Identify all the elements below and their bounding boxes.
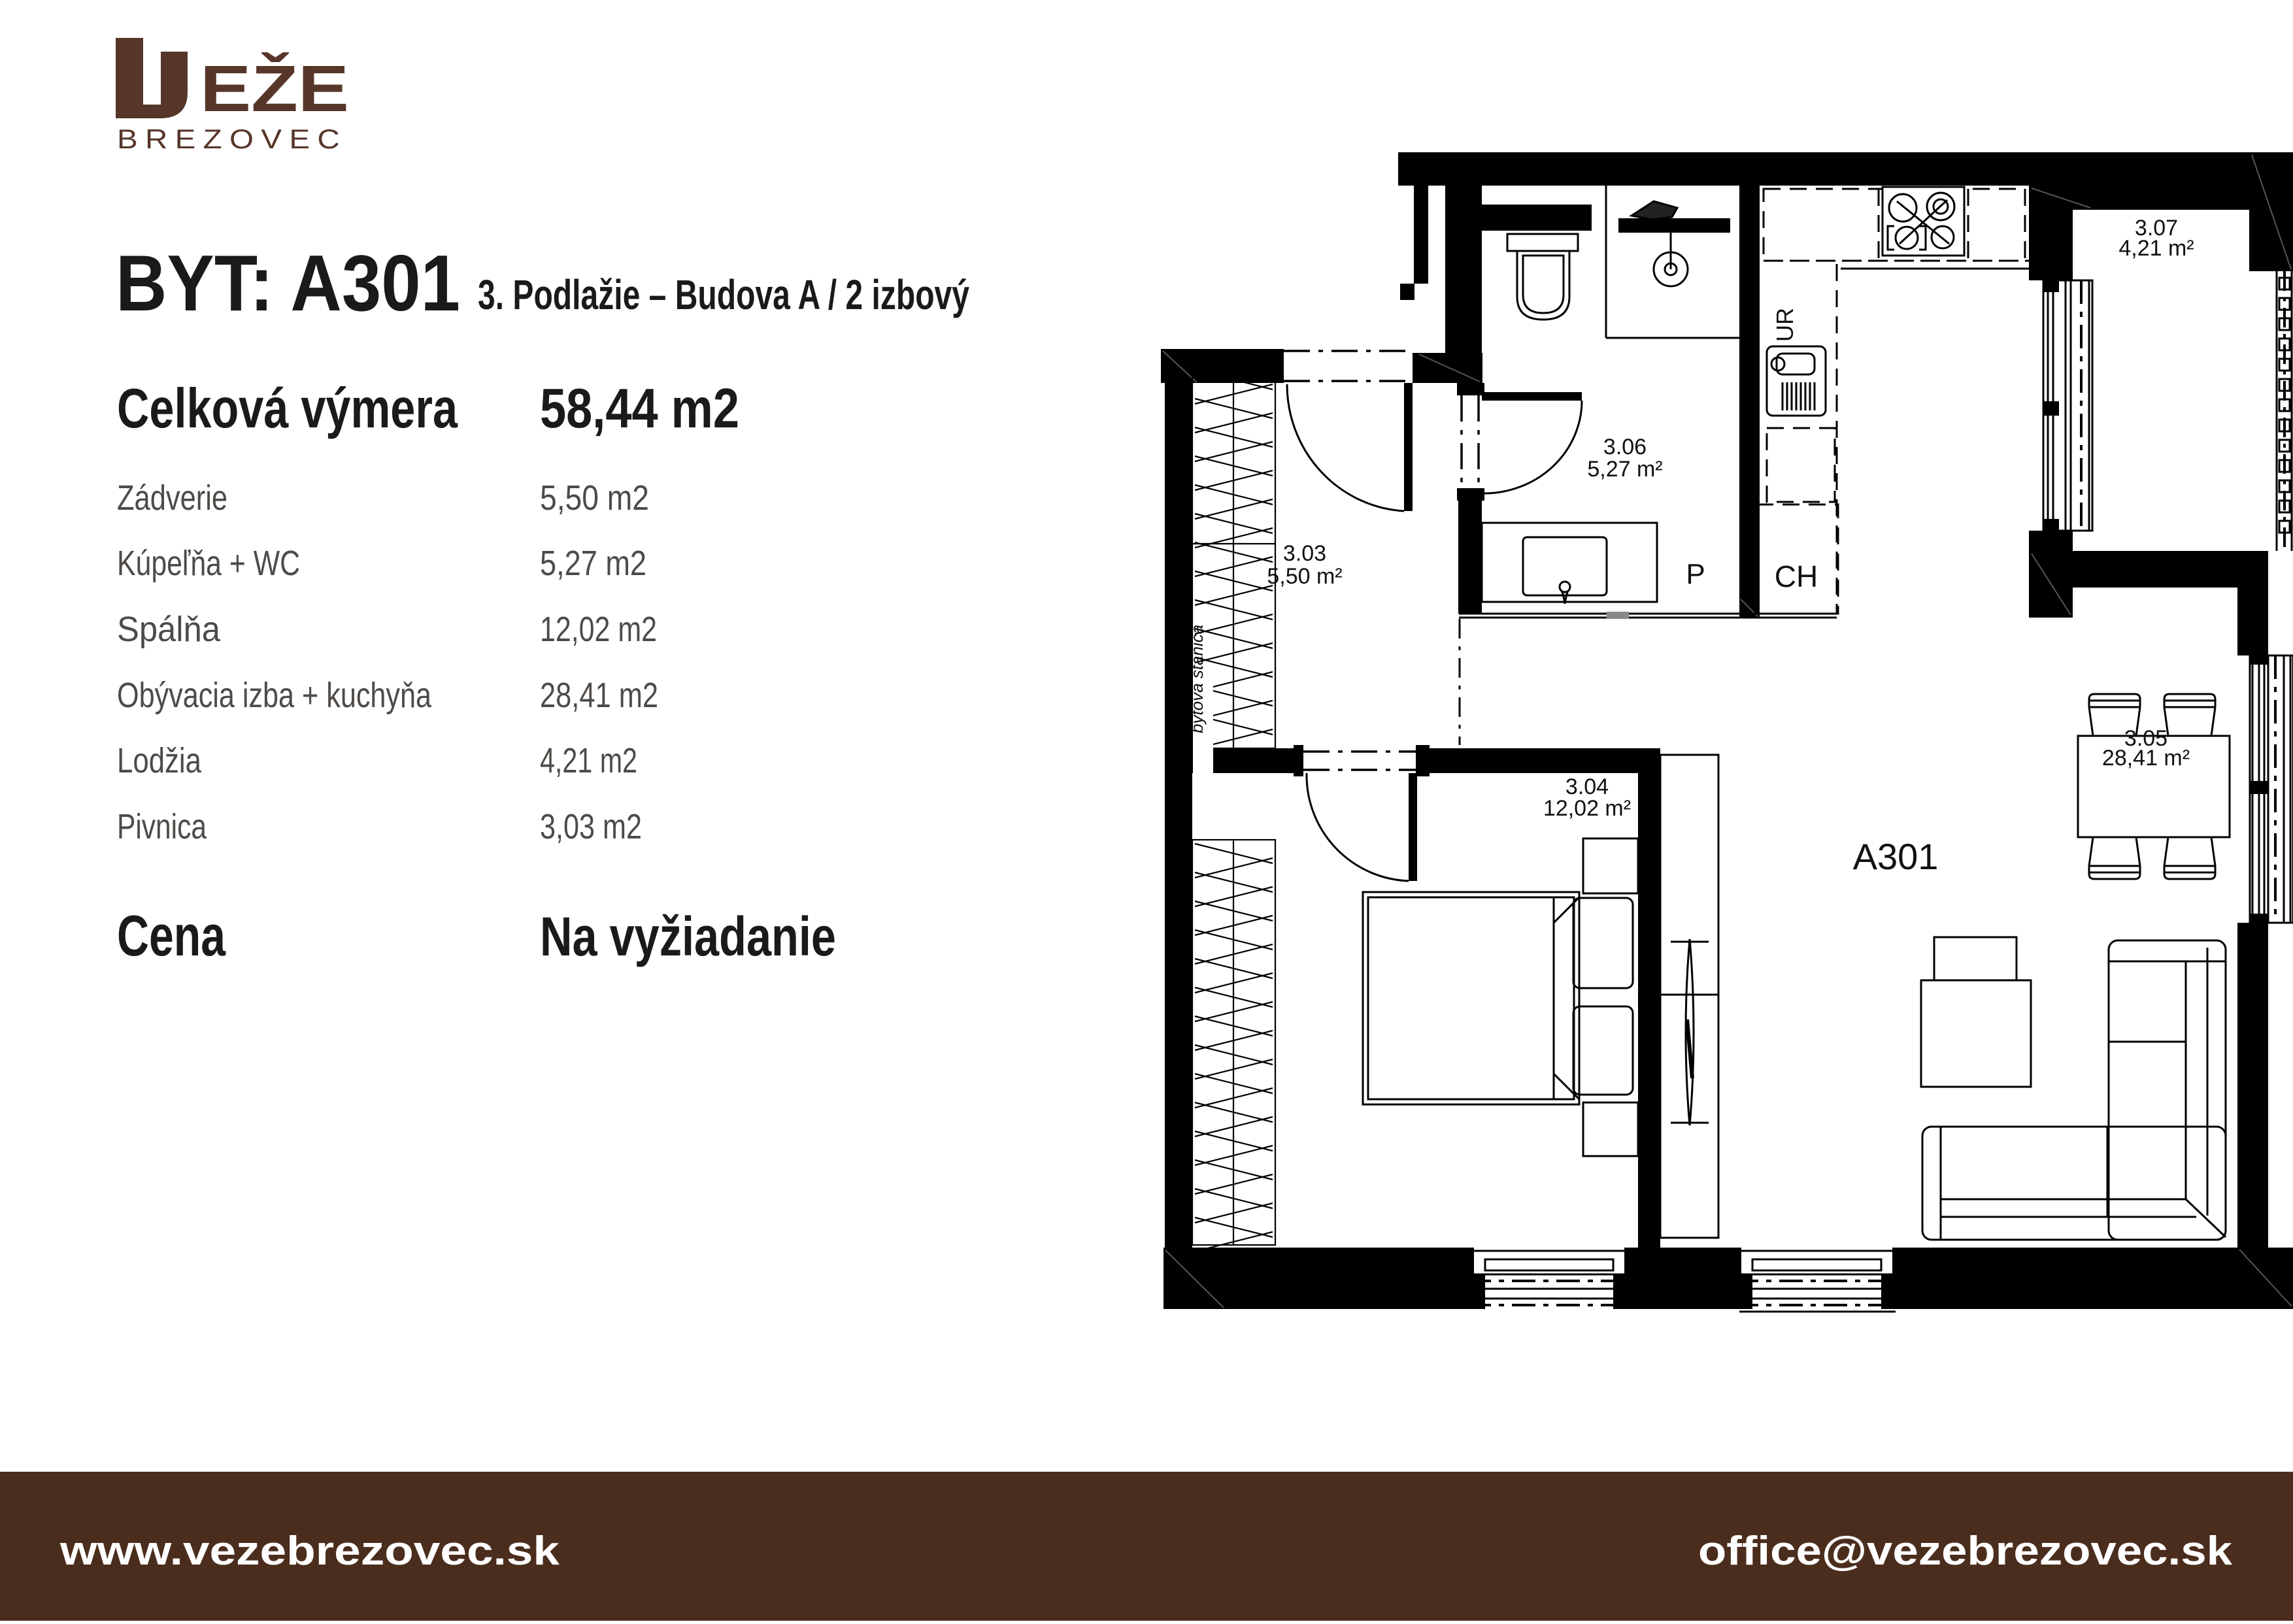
svg-text:Celková výmera: Celková výmera	[117, 378, 458, 440]
svg-text:office@vezebrezovec.sk: office@vezebrezovec.sk	[1698, 1529, 2233, 1574]
svg-text:4,21 m2: 4,21 m2	[540, 741, 637, 780]
svg-text:3.06: 3.06	[1603, 435, 1647, 459]
svg-text:5,50 m2: 5,50 m2	[540, 478, 649, 518]
svg-text:3. Podlažie – Budova A / 2 izb: 3. Podlažie – Budova A / 2 izbový	[478, 271, 969, 318]
svg-text:4,21 m²: 4,21 m²	[2118, 236, 2194, 261]
svg-text:www.vezebrezovec.sk: www.vezebrezovec.sk	[59, 1529, 560, 1574]
svg-text:Kúpeľňa + WC: Kúpeľňa + WC	[117, 544, 300, 583]
svg-text:Na vyžiadanie: Na vyžiadanie	[540, 906, 836, 967]
svg-text:58,44 m2: 58,44 m2	[540, 378, 739, 440]
svg-text:BYT: A301: BYT: A301	[116, 239, 460, 327]
svg-text:28,41 m²: 28,41 m²	[2102, 746, 2190, 771]
svg-text:Spálňa: Spálňa	[117, 610, 221, 649]
svg-text:12,02 m2: 12,02 m2	[540, 610, 657, 649]
svg-text:Lodžia: Lodžia	[117, 741, 202, 780]
svg-text:5,27 m²: 5,27 m²	[1587, 457, 1662, 482]
svg-text:5,50 m²: 5,50 m²	[1267, 564, 1342, 589]
svg-text:A301: A301	[1853, 836, 1939, 877]
svg-text:Obývacia izba + kuchyňa: Obývacia izba + kuchyňa	[117, 676, 432, 715]
svg-text:12,02 m²: 12,02 m²	[1543, 796, 1631, 821]
svg-text:CH: CH	[1775, 559, 1818, 593]
svg-text:EŽE: EŽE	[200, 52, 349, 125]
svg-text:Cena: Cena	[117, 903, 226, 968]
svg-text:UR: UR	[1771, 308, 1798, 342]
svg-text:Pivnica: Pivnica	[117, 807, 207, 846]
svg-text:Zádverie: Zádverie	[117, 478, 227, 518]
svg-text:3,03 m2: 3,03 m2	[540, 807, 642, 846]
svg-text:bytová stanica: bytová stanica	[1187, 625, 1207, 733]
svg-text:P: P	[1686, 558, 1705, 590]
svg-text:BREZOVEC: BREZOVEC	[117, 124, 347, 154]
svg-text:3.03: 3.03	[1283, 541, 1326, 566]
svg-text:28,41 m2: 28,41 m2	[540, 676, 658, 715]
svg-text:5,27 m2: 5,27 m2	[540, 544, 646, 583]
